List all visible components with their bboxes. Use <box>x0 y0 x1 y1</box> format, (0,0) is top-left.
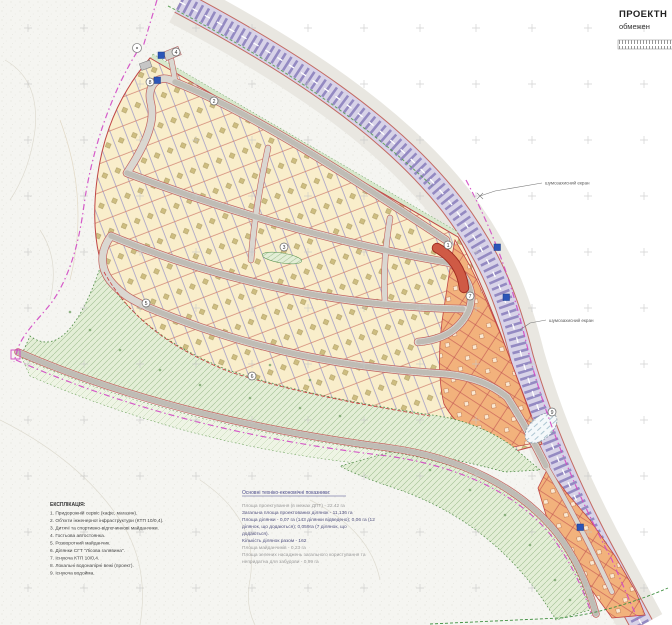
indicator-line: Загальна площа проектованих ділянок - 11… <box>242 510 353 516</box>
legend-item: 1. Придорожній сервіс (кафе, магазин). <box>50 510 137 517</box>
marker-7: 7 <box>466 292 474 300</box>
legend-item: 5. Розворотний майданчик. <box>50 540 110 547</box>
marker-2: 2 <box>210 97 218 105</box>
marker-3: 3 <box>280 243 288 251</box>
marker-8: 8 <box>146 78 154 86</box>
marker-9: 9 <box>548 408 556 416</box>
indicator-line: непридатна для забудови - 0,99 га <box>242 559 319 565</box>
legend-sample-bar <box>618 40 672 49</box>
indicator-line: Площа ділянки - 0,07 га (143 ділянки від… <box>242 517 375 523</box>
legend-item: 9. Існуюча водойма. <box>50 570 95 577</box>
legend-item: 2. Об'єкти інженерної інфраструктури (КТ… <box>50 518 164 524</box>
legend-header: ЕКСПЛІКАЦІЯ: <box>50 502 86 508</box>
marker-5: 5 <box>142 299 150 307</box>
marker-9-label: 9 <box>551 410 554 416</box>
marker-3-label: 3 <box>283 245 286 251</box>
legend-item: 3. Дитячі та спортивно-відпочинкові майд… <box>50 525 159 532</box>
indicator-line: Площа майданчиків - 0,23 га <box>242 544 306 551</box>
marker-6-label: 6 <box>251 374 254 380</box>
sheet-subtitle: обмежен <box>619 22 650 31</box>
noise-screen-label-2: шумозахисний екран <box>549 317 594 323</box>
site-plan-map: 1 2 3 4 5 6 7 8 9 шумозахисний екран шум… <box>0 0 672 625</box>
indicator-line: додаються). <box>242 531 269 537</box>
marker-4: 4 <box>172 48 180 56</box>
legend-item: 6. Ділянки СГТ "Лісова галявина". <box>50 548 125 554</box>
indicator-line: Площа зелених насаджень загального корис… <box>242 552 366 558</box>
indicator-line: Кількість ділянок разом - 162 <box>242 538 307 544</box>
marker-5-label: 5 <box>145 301 148 307</box>
indicator-line: ділянок, що додаються); 0,059га (7 ділян… <box>242 524 347 530</box>
sheet-title: ПРОЕКТН <box>619 9 667 20</box>
legend-item: 7. Існуюча КТП 10/0,4. <box>50 556 99 562</box>
marker-7-label: 7 <box>469 294 472 300</box>
legend-item: 8. Локальні водонапірні вежі (проект). <box>50 563 134 569</box>
marker-8-label: 8 <box>149 80 152 86</box>
marker-2-label: 2 <box>213 99 216 105</box>
indicator-line: Площа проектування (в межах ДПТ) - 22.42… <box>242 503 345 509</box>
site-plan-page: 1 2 3 4 5 6 7 8 9 шумозахисний екран шум… <box>0 0 672 625</box>
marker-4-label: 4 <box>175 50 178 56</box>
marker-6: 6 <box>248 372 256 380</box>
marker-1-label: 1 <box>447 243 450 249</box>
marker-1: 1 <box>444 241 452 249</box>
noise-screen-label-1: шумозахисний екран <box>545 180 590 186</box>
indicators-header: Основні техніко-економічні показники: <box>242 490 330 496</box>
legend-item: 4. Гостьова автостоянка. <box>50 533 105 539</box>
